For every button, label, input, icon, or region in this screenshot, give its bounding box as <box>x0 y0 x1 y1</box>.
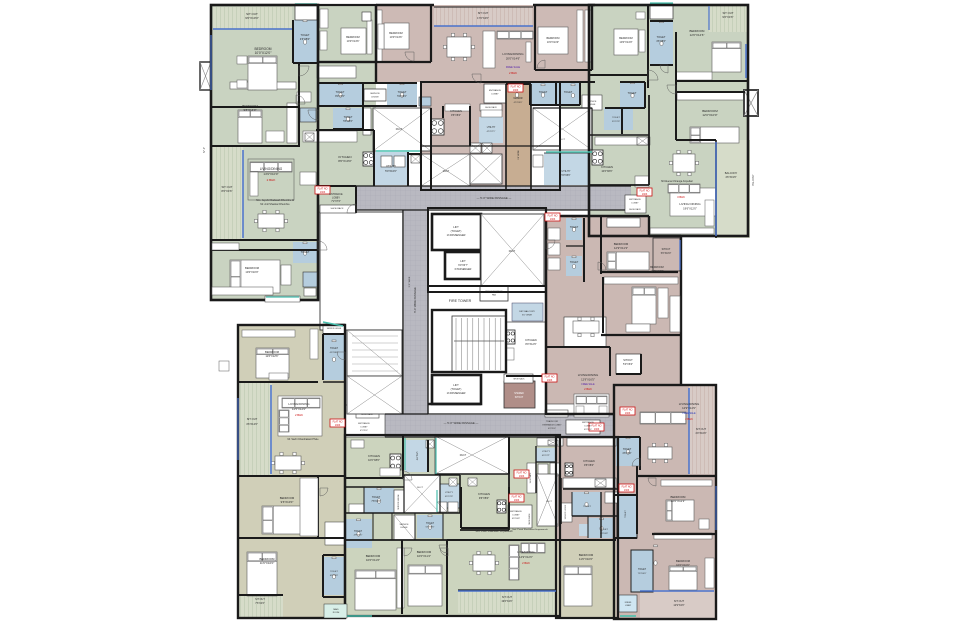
svg-text:5'0"X10'0": 5'0"X10'0" <box>661 253 672 255</box>
svg-text:13 PASSENGER: 13 PASSENGER <box>447 234 466 237</box>
svg-text:Smt. Preeti Shashikant Suryawa: Smt. Preeti Shashikant Suryawanshi <box>475 530 513 533</box>
svg-text:12'9"X11'3": 12'9"X11'3" <box>614 246 628 250</box>
svg-text:7'6"X4'6": 7'6"X4'6" <box>255 602 265 605</box>
svg-text:DUCT: DUCT <box>546 501 553 503</box>
svg-text:KITCHEN: KITCHEN <box>601 165 613 169</box>
svg-text:11'6"X12'6": 11'6"X12'6" <box>265 354 278 358</box>
svg-text:KITCHEN: KITCHEN <box>525 338 537 342</box>
svg-text:1303: 1303 <box>550 218 556 221</box>
svg-text:2 BHK: 2 BHK <box>522 561 530 565</box>
svg-text:11'6"X10'0": 11'6"X10'0" <box>579 557 593 561</box>
svg-text:BALCONY: BALCONY <box>725 171 738 175</box>
svg-text:SIT OUT: SIT OUT <box>502 595 513 599</box>
svg-text:2 BHK: 2 BHK <box>584 387 592 391</box>
svg-text:11'6"X10'0": 11'6"X10'0" <box>260 561 275 565</box>
svg-text:LIVING/DINING: LIVING/DINING <box>288 402 310 406</box>
svg-text:2 BHK: 2 BHK <box>509 71 517 75</box>
svg-text:Mr. Anil Shankar Dhembre: Mr. Anil Shankar Dhembre <box>260 203 290 206</box>
svg-text:Mr.Meena Chiranga Ampelkar: Mr.Meena Chiranga Ampelkar <box>661 180 693 183</box>
svg-text:SIT OUT: SIT OUT <box>247 417 258 421</box>
svg-text:TOILET: TOILET <box>330 571 338 573</box>
svg-text:SHOE RACK: SHOE RACK <box>550 413 562 416</box>
svg-text:LIVE/DINING: LIVE/DINING <box>517 550 535 554</box>
svg-text:4'0"X16'0": 4'0"X16'0" <box>695 432 706 435</box>
svg-text:5'6"X8'6": 5'6"X8'6" <box>343 120 353 123</box>
svg-text:1303: 1303 <box>594 428 600 431</box>
svg-text:3'-0" WIDE: 3'-0" WIDE <box>409 276 411 287</box>
svg-text:— 5'-0" WIDE PASSAGE —: — 5'-0" WIDE PASSAGE — <box>477 196 512 200</box>
svg-text:SIT OUT: SIT OUT <box>255 598 265 601</box>
svg-text:SITOUT: SITOUT <box>515 397 524 399</box>
svg-text:Mrs. Jayshri Dadasab Dhembre &: Mrs. Jayshri Dadasab Dhembre & <box>256 199 294 202</box>
svg-text:SERVICE: SERVICE <box>370 93 380 95</box>
svg-text:LIFT: LIFT <box>453 225 459 229</box>
svg-text:10'0"X12'0": 10'0"X12'0" <box>255 51 273 55</box>
svg-text:4'6"X8'0": 4'6"X8'0" <box>330 575 339 577</box>
svg-text:13 PASSENGER: 13 PASSENGER <box>447 392 466 395</box>
svg-text:UTILITY: UTILITY <box>415 452 417 461</box>
svg-text:KITCHEN: KITCHEN <box>478 492 490 496</box>
svg-text:19'6"X12'0": 19'6"X12'0" <box>683 207 697 211</box>
svg-text:DUCT: DUCT <box>509 251 516 253</box>
svg-text:5'0"X6'0": 5'0"X6'0" <box>623 363 633 366</box>
svg-text:4'6"X5'0": 4'6"X5'0" <box>584 429 592 431</box>
svg-text:20'0"X14'6": 20'0"X14'6" <box>506 57 520 61</box>
svg-text:4'9"X8'1": 4'9"X8'1" <box>354 535 363 537</box>
svg-text:LOBBY: LOBBY <box>361 427 369 429</box>
svg-text:10'6"X8'0": 10'6"X8'0" <box>601 170 612 173</box>
svg-text:6 PASSENGER: 6 PASSENGER <box>455 268 472 271</box>
svg-text:MAID: MAID <box>333 608 339 611</box>
svg-text:SHOE RACK: SHOE RACK <box>331 207 344 210</box>
svg-text:7'6"X4'0": 7'6"X4'0" <box>371 501 380 503</box>
svg-text:LIVING/DINING: LIVING/DINING <box>679 402 700 406</box>
svg-text:10'0"X10'0": 10'0"X10'0" <box>245 270 258 274</box>
svg-text:4'5"X5'0": 4'5"X5'0" <box>360 430 368 432</box>
svg-text:TOILET: TOILET <box>625 510 627 518</box>
svg-text:TRACE FOR: TRACE FOR <box>546 420 559 423</box>
svg-text:10'0"X8'6": 10'0"X8'6" <box>368 458 380 462</box>
svg-text:UTILITY: UTILITY <box>386 164 396 168</box>
svg-text:14'5"X12'0": 14'5"X12'0" <box>292 407 306 411</box>
svg-text:LIVING/DINING: LIVING/DINING <box>260 167 283 171</box>
svg-text:1303: 1303 <box>335 424 341 427</box>
svg-text:12'0"X11'3": 12'0"X11'3" <box>671 499 686 503</box>
svg-text:MANDIR: MANDIR <box>513 97 522 100</box>
svg-text:TOILET: TOILET <box>583 506 591 508</box>
svg-text:SHOE RACK: SHOE RACK <box>361 413 373 416</box>
svg-text:PRESSURIZATION: PRESSURIZATION <box>485 290 503 293</box>
svg-text:3'0" WIDE: 3'0" WIDE <box>518 150 520 160</box>
svg-text:UTILITY: UTILITY <box>445 492 454 494</box>
svg-text:14'9"X12'0": 14'9"X12'0" <box>519 555 533 559</box>
svg-text:57'-0": 57'-0" <box>203 147 206 153</box>
svg-text:DUCT: DUCT <box>559 139 566 141</box>
svg-text:(TOILET): (TOILET) <box>451 387 462 391</box>
svg-text:12'9"X4'0": 12'9"X4'0" <box>673 604 684 607</box>
svg-text:BEDROOM: BEDROOM <box>265 350 280 354</box>
svg-text:TOILET: TOILET <box>570 226 579 229</box>
svg-text:ROOM: ROOM <box>333 612 340 614</box>
svg-text:DUCT: DUCT <box>443 171 450 173</box>
svg-text:10'0"X14'6": 10'0"X14'6" <box>390 36 403 39</box>
svg-text:DUCT: DUCT <box>417 487 424 489</box>
svg-text:3 BHK: 3 BHK <box>677 195 685 199</box>
svg-text:9'6"X4'6": 9'6"X4'6" <box>722 15 733 19</box>
svg-text:LOBBY: LOBBY <box>625 605 632 607</box>
svg-text:SHOE RACK: SHOE RACK <box>528 513 531 525</box>
svg-text:4'6"X19'6": 4'6"X19'6" <box>725 176 736 179</box>
svg-text:FIRE TOWER: FIRE TOWER <box>449 299 472 303</box>
svg-text:12'0"X14'6": 12'0"X14'6" <box>690 33 705 37</box>
svg-text:4'6"X12'6": 4'6"X12'6" <box>246 422 258 426</box>
svg-text:1303: 1303 <box>519 475 525 478</box>
svg-text:TOILET: TOILET <box>564 91 573 94</box>
svg-text:ENTRANCE: ENTRANCE <box>629 198 641 201</box>
svg-text:3'0" WIDE: 3'0" WIDE <box>522 315 532 317</box>
svg-text:SERVICE: SERVICE <box>399 524 409 526</box>
svg-text:4'6"X8'0": 4'6"X8'0" <box>330 352 339 354</box>
svg-text:5'0"X10'0": 5'0"X10'0" <box>385 169 397 173</box>
svg-text:SERVICE: SERVICE <box>588 101 597 103</box>
svg-text:5'0"X8'0": 5'0"X8'0" <box>397 95 407 98</box>
svg-text:BEDROOM: BEDROOM <box>650 265 663 269</box>
svg-text:LIFT: LIFT <box>453 383 459 387</box>
svg-text:UTILITY: UTILITY <box>562 170 571 173</box>
svg-text:1303: 1303 <box>513 89 519 92</box>
svg-text:FREE SALE: FREE SALE <box>581 383 595 386</box>
svg-text:TOILET: TOILET <box>628 92 637 95</box>
svg-text:SHARED: SHARED <box>514 392 524 395</box>
svg-text:— 5'-0" WIDE PASSAGE —: — 5'-0" WIDE PASSAGE — <box>444 421 479 425</box>
svg-text:LIVING/DINING: LIVING/DINING <box>502 52 524 56</box>
svg-text:LOBBY: LOBBY <box>632 203 640 205</box>
svg-text:17'0"X4'6": 17'0"X4'6" <box>477 16 489 20</box>
svg-text:10'0"X11'2": 10'0"X11'2" <box>417 554 431 558</box>
svg-text:KITCHEN: KITCHEN <box>368 454 380 458</box>
svg-text:12'9"X16'5": 12'9"X16'5" <box>581 378 595 382</box>
svg-text:TOILET: TOILET <box>623 448 632 451</box>
svg-text:LIVING/ DINING: LIVING/ DINING <box>679 202 701 206</box>
svg-text:TOILET: TOILET <box>638 569 647 571</box>
svg-text:TOILET: TOILET <box>398 91 407 94</box>
svg-text:TOILET: TOILET <box>600 529 608 531</box>
svg-text:LIVING/DINING: LIVING/DINING <box>578 373 599 377</box>
svg-text:DRY BALCONY: DRY BALCONY <box>519 310 535 313</box>
svg-text:5'0"X7'6": 5'0"X7'6" <box>612 121 621 123</box>
svg-text:5'0"X8'0": 5'0"X8'0" <box>561 175 570 177</box>
svg-text:LOBBY: LOBBY <box>585 426 593 428</box>
svg-text:SHOE RACK: SHOE RACK <box>529 472 532 483</box>
svg-text:ENTRANCE: ENTRANCE <box>358 422 370 425</box>
svg-text:TOILET: TOILET <box>570 261 579 264</box>
svg-text:9'6"X8'0": 9'6"X8'0" <box>479 496 489 500</box>
svg-text:ENTRANCE: ENTRANCE <box>510 510 522 513</box>
svg-text:LIFT: LIFT <box>460 259 466 263</box>
svg-text:TOILET: TOILET <box>539 91 548 94</box>
svg-text:9'6"X10'0": 9'6"X10'0" <box>281 500 294 504</box>
svg-text:FAN: FAN <box>492 294 496 297</box>
svg-text:SITOUT: SITOUT <box>662 248 671 251</box>
svg-text:BALCONY: BALCONY <box>752 174 755 185</box>
svg-text:10'0"X14'0": 10'0"X14'0" <box>619 40 632 44</box>
svg-text:ENTRANCE LOBBY: ENTRANCE LOBBY <box>543 424 563 427</box>
svg-text:4'6"X8'0": 4'6"X8'0" <box>622 453 631 455</box>
svg-text:BEDROOM: BEDROOM <box>619 36 632 40</box>
svg-text:2 BHK: 2 BHK <box>295 413 303 417</box>
svg-text:9'6"X8'0": 9'6"X8'0" <box>584 464 594 467</box>
svg-text:Smt. Preeti Shashikant Suryawa: Smt. Preeti Shashikant Suryawanshi <box>512 528 548 531</box>
svg-text:LEDGE: LEDGE <box>400 527 408 529</box>
svg-text:9'8"X14'0": 9'8"X14'0" <box>243 108 256 112</box>
svg-text:SITOUT: SITOUT <box>623 358 633 362</box>
svg-text:4'0"X5'0": 4'0"X5'0" <box>548 428 556 430</box>
svg-text:DUCT: DUCT <box>396 129 403 131</box>
svg-text:1303: 1303 <box>642 193 648 196</box>
svg-text:19'6"X4'0": 19'6"X4'0" <box>501 600 512 603</box>
svg-text:8'0"X4'6": 8'0"X4'6" <box>221 189 232 193</box>
svg-text:SERVICE LEDGE: SERVICE LEDGE <box>327 328 342 330</box>
svg-text:TOILET: TOILET <box>372 496 381 499</box>
svg-text:12'9"X14'9": 12'9"X14'9" <box>682 406 696 410</box>
svg-text:SERVICE LEDGE: SERVICE LEDGE <box>565 504 567 519</box>
svg-text:Mr. Sachi Chandrakant Phule: Mr. Sachi Chandrakant Phule <box>287 438 319 441</box>
svg-text:4'6"X6'6": 4'6"X6'6" <box>512 518 521 520</box>
svg-text:7'6"X4'0": 7'6"X4'0" <box>638 573 647 575</box>
svg-text:14'9"X10'0": 14'9"X10'0" <box>263 172 278 176</box>
svg-text:SIT OUT: SIT OUT <box>696 427 707 431</box>
svg-text:4'6"X8'6": 4'6"X8'6" <box>656 40 666 43</box>
svg-text:SIT OUT: SIT OUT <box>674 599 685 603</box>
svg-text:UTILITY: UTILITY <box>487 127 496 129</box>
svg-text:DRESS: DRESS <box>625 602 632 604</box>
svg-text:TOILET: TOILET <box>344 116 353 119</box>
svg-text:10'0"X14'0": 10'0"X14'0" <box>547 41 559 44</box>
svg-text:2 BHK: 2 BHK <box>267 178 276 182</box>
svg-text:TOILET: TOILET <box>612 117 620 119</box>
svg-text:TOILET: TOILET <box>336 91 345 94</box>
svg-text:SHOE RACK: SHOE RACK <box>513 378 525 381</box>
svg-text:12'0"X10'0": 12'0"X10'0" <box>702 113 717 117</box>
svg-text:TOILET: TOILET <box>330 348 339 350</box>
svg-text:BEDROOM: BEDROOM <box>346 35 359 39</box>
svg-text:TOILET: TOILET <box>301 251 310 254</box>
svg-text:2 BHK: 2 BHK <box>685 417 693 421</box>
svg-text:7'3"X4'6": 7'3"X4'6" <box>600 533 609 535</box>
svg-text:TOILET: TOILET <box>657 36 666 39</box>
svg-text:4'6"X8'0": 4'6"X8'0" <box>300 37 310 41</box>
svg-text:LOBBY: LOBBY <box>491 94 499 96</box>
svg-text:FREE SALE: FREE SALE <box>682 412 696 415</box>
svg-text:FREE SALE: FREE SALE <box>506 65 521 69</box>
svg-text:10'0"X14'6": 10'0"X14'6" <box>347 40 360 43</box>
svg-text:1303: 1303 <box>320 191 326 194</box>
svg-text:10'0"X11'6": 10'0"X11'6" <box>366 558 380 562</box>
svg-text:1303: 1303 <box>547 379 553 382</box>
svg-text:(TOILET): (TOILET) <box>451 229 462 233</box>
svg-text:DUCT: DUCT <box>460 455 467 457</box>
svg-text:5'-0" WIDE PASSAGE: 5'-0" WIDE PASSAGE <box>413 287 417 313</box>
svg-text:UTILITY: UTILITY <box>542 451 551 453</box>
svg-text:11'3"X10'3": 11'3"X10'3" <box>650 269 663 273</box>
svg-text:9'6"X10'0": 9'6"X10'0" <box>245 16 259 20</box>
svg-text:1303: 1303 <box>514 499 520 502</box>
svg-text:BEDROOM: BEDROOM <box>676 559 691 563</box>
svg-text:1303: 1303 <box>624 489 630 492</box>
svg-text:BEDROOM: BEDROOM <box>389 31 402 35</box>
svg-text:KITCHEN: KITCHEN <box>450 109 462 113</box>
svg-text:KITCHEN: KITCHEN <box>583 459 595 463</box>
svg-text:4'6"X7'1": 4'6"X7'1" <box>542 455 551 457</box>
svg-text:ENTRANCE: ENTRANCE <box>489 89 502 92</box>
svg-text:8'0"X5'0": 8'0"X5'0" <box>335 95 345 98</box>
svg-text:SHOE RACK: SHOE RACK <box>629 208 641 211</box>
svg-text:TOILET: TOILET <box>426 523 435 525</box>
svg-text:SERVICE LEDGE: SERVICE LEDGE <box>398 494 400 510</box>
svg-text:9'6"X8'0": 9'6"X8'0" <box>451 114 461 117</box>
svg-text:5'6"X8'6": 5'6"X8'6" <box>426 527 435 529</box>
svg-text:BEDROOM: BEDROOM <box>547 37 560 40</box>
svg-text:TOILET: TOILET <box>300 33 309 37</box>
svg-text:SIT OUT: SIT OUT <box>478 11 489 15</box>
svg-text:10'0"X10'0": 10'0"X10'0" <box>676 563 690 567</box>
svg-text:1303: 1303 <box>625 412 631 415</box>
svg-text:TOILET: TOILET <box>354 531 363 533</box>
svg-text:LEDGE: LEDGE <box>371 97 379 99</box>
svg-text:8'0"X10'0": 8'0"X10'0" <box>338 159 352 163</box>
svg-text:6'0"X6'7": 6'0"X6'7" <box>458 264 468 267</box>
svg-text:ENTRANCE: ENTRANCE <box>582 421 594 424</box>
svg-text:4'6"X7'6": 4'6"X7'6" <box>445 496 454 498</box>
svg-text:SHOE RACK: SHOE RACK <box>485 106 497 109</box>
svg-text:8'0"X12'6": 8'0"X12'6" <box>525 343 536 346</box>
svg-text:4'5"X3'0": 4'5"X3'0" <box>514 102 523 104</box>
svg-text:4'5"X7'1": 4'5"X7'1" <box>487 131 496 133</box>
svg-text:BEDROOM: BEDROOM <box>245 266 260 270</box>
svg-text:LEDGE: LEDGE <box>589 104 596 106</box>
svg-text:7'2"X7'6": 7'2"X7'6" <box>331 200 341 203</box>
svg-text:LOBBY: LOBBY <box>513 515 521 517</box>
